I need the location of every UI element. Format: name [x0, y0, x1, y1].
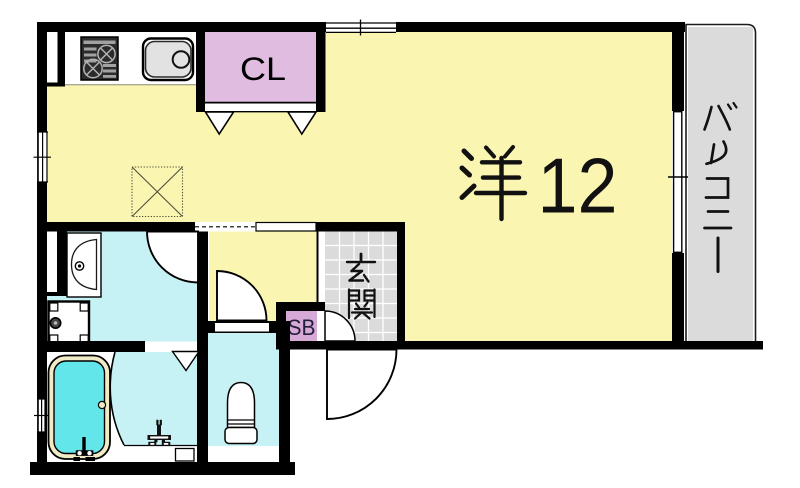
svg-text:12: 12 — [538, 142, 618, 230]
svg-text:SB: SB — [288, 315, 316, 340]
svg-text:CL: CL — [240, 51, 286, 87]
